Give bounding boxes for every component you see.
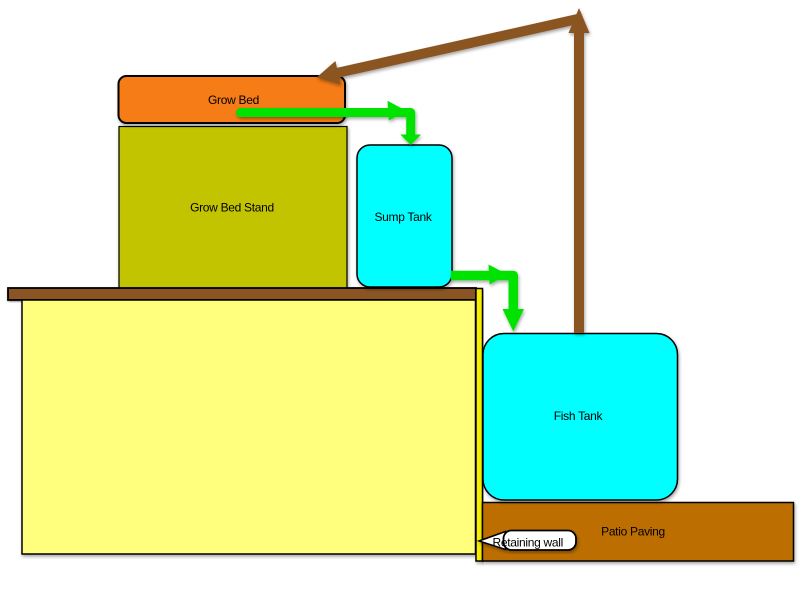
svg-text:Patio Paving: Patio Paving [601, 525, 665, 539]
svg-text:Sump Tank: Sump Tank [374, 210, 432, 224]
svg-text:Retaining wall: Retaining wall [493, 536, 564, 550]
svg-text:Fish Tank: Fish Tank [554, 409, 604, 423]
svg-text:Grow Bed Stand: Grow Bed Stand [190, 201, 274, 215]
svg-text:Grow Bed: Grow Bed [208, 93, 259, 107]
